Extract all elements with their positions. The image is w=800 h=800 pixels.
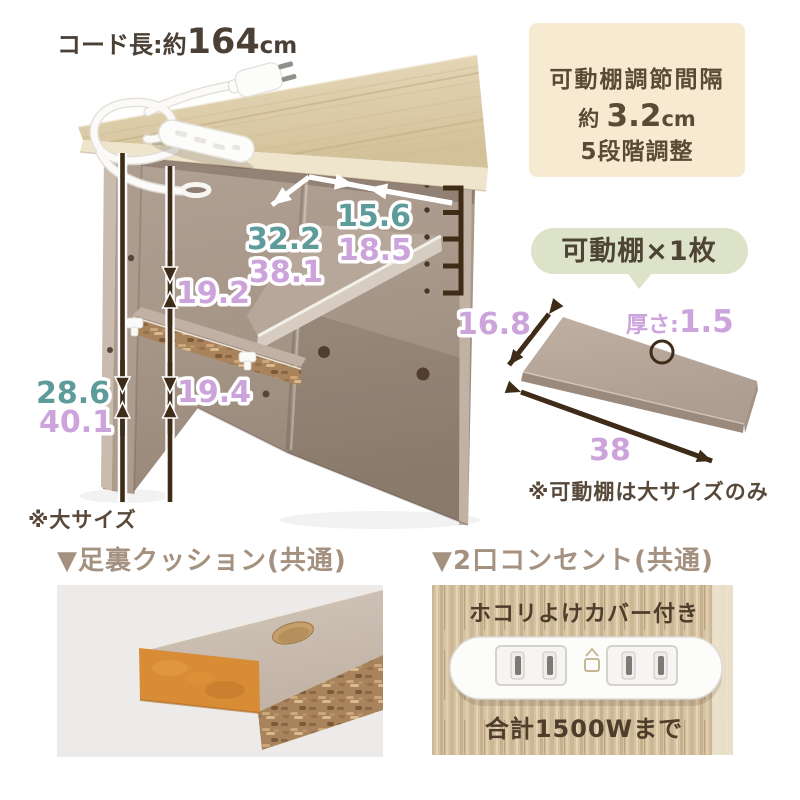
plug-pin xyxy=(281,74,297,83)
spec-line1: 可動棚調節間隔 xyxy=(550,66,725,93)
shelf-note: ※可動棚は大サイズのみ xyxy=(528,480,769,504)
outlet-title: ▼2口コンセント(共通) xyxy=(432,546,714,576)
shelf-depth-label: 16.8 xyxy=(457,307,531,342)
spec-line3: 5段階調整 xyxy=(580,138,693,165)
outlet-photo: ホコリよけカバー付き 合計1500Wまで xyxy=(432,585,733,755)
infographic-canvas: コード長:約164cm xyxy=(0,0,800,800)
dim-height-large: 40.1 xyxy=(39,405,113,440)
large-size-note: ※大サイズ xyxy=(28,508,137,532)
dim-width-small: 32.2 xyxy=(247,222,321,257)
product-dimension-infographic: コード長:約164cm xyxy=(0,0,800,800)
outlet-section: ▼2口コンセント(共通) ホコリよけカバー付き xyxy=(432,546,733,755)
shelf-badge-tail xyxy=(626,271,654,289)
outlet-socket-2 xyxy=(607,646,677,685)
dim-depth-small: 15.6 xyxy=(337,199,411,234)
dim-width-large: 38.1 xyxy=(249,255,323,290)
outlet-cover-note: ホコリよけカバー付き xyxy=(469,602,699,627)
plug-pin xyxy=(278,61,294,70)
dim-depth-large: 18.5 xyxy=(338,233,412,268)
cushion-section: ▼足裏クッション(共通) xyxy=(57,545,383,757)
shelf-badge: 可動棚×1枚 xyxy=(531,228,748,289)
shelf-badge-label: 可動棚×1枚 xyxy=(561,236,716,267)
outlet-wattage-note: 合計1500Wまで xyxy=(485,715,683,743)
shelf-thickness-label: 厚さ:1.5 xyxy=(626,304,734,340)
table-illustration: 15.6 18.5 32.2 38.1 19.2 19.4 28.6 40.1 … xyxy=(28,55,493,532)
outlet-socket-1 xyxy=(496,646,566,685)
shelf-width-label: 38 xyxy=(589,433,631,468)
dim-upper-gap: 19.2 xyxy=(176,276,250,311)
cord-grommet xyxy=(183,185,209,196)
spec-box: 可動棚調節間隔 約 3.2cm 5段階調整 xyxy=(529,23,745,177)
dim-lower-gap: 19.4 xyxy=(177,375,251,410)
cushion-photo xyxy=(57,585,383,757)
cord-length-label: コード長:約164cm xyxy=(57,22,297,62)
shelf-plank-diagram: 16.8 厚さ:1.5 38 ※可動棚は大サイズのみ xyxy=(457,304,769,504)
cushion-title: ▼足裏クッション(共通) xyxy=(57,545,347,576)
